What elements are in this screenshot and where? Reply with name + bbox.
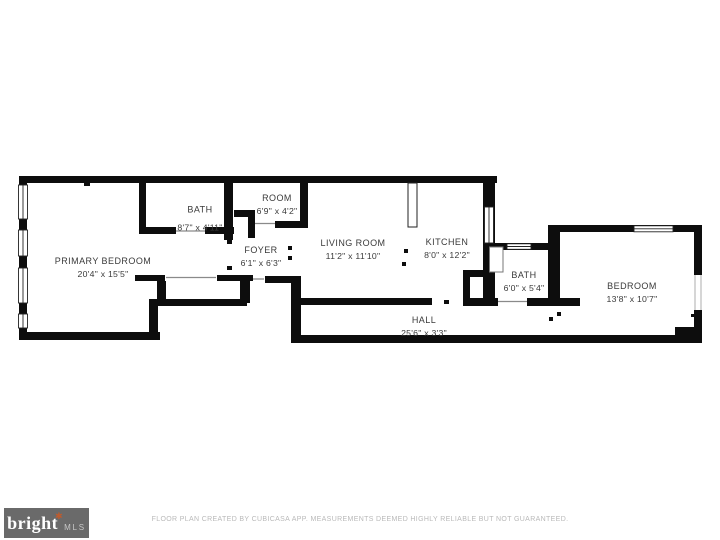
room-label-room: ROOM 6'9" x 4'2" <box>257 193 298 217</box>
room-name: FOYER <box>241 245 282 256</box>
room-dimensions: 6'1" x 6'3" <box>241 258 282 269</box>
logo-suffix-text: MLS <box>64 523 86 532</box>
room-dimensions: 11'2" x 11'10" <box>321 251 386 262</box>
room-dimensions: 8'7" x 4'11" <box>177 223 222 234</box>
room-dimensions: 6'9" x 4'2" <box>257 206 298 217</box>
room-label-hall: HALL 25'6" x 3'3" <box>401 315 447 339</box>
disclaimer-text: FLOOR PLAN CREATED BY CUBICASA APP. MEAS… <box>0 516 720 523</box>
room-label-foyer: FOYER 6'1" x 6'3" <box>241 245 282 269</box>
room-dimensions: 6'0" x 5'4" <box>504 283 545 294</box>
room-dimensions: 20'4" x 15'5" <box>55 269 151 280</box>
bedroom-right-opening <box>694 275 702 310</box>
window-bath <box>507 244 531 250</box>
room-label-living-room: LIVING ROOM 11'2" x 11'10" <box>321 238 386 262</box>
room-label-bedroom: BEDROOM 13'8" x 10'7" <box>607 281 658 305</box>
bright-mls-logo: bright✱MLS <box>4 508 89 538</box>
room-label-kitchen: KITCHEN 8'0" x 12'2" <box>424 237 470 261</box>
floor-plan-page: PRIMARY BEDROOM 20'4" x 15'5" BATH 8'7" … <box>0 0 720 540</box>
room-dimensions: 25'6" x 3'3" <box>401 328 447 339</box>
window-left-2 <box>19 230 28 256</box>
window-kitchen <box>485 207 494 243</box>
room-name: BEDROOM <box>607 281 658 292</box>
room-label-primary-bedroom: PRIMARY BEDROOM 20'4" x 15'5" <box>55 256 151 280</box>
room-dimensions: 13'8" x 10'7" <box>607 294 658 305</box>
room-name: BATH <box>177 205 222 216</box>
room-label-bath-2: BATH 6'0" x 5'4" <box>504 270 545 294</box>
room-name: LIVING ROOM <box>321 238 386 249</box>
window-left-4 <box>19 314 28 328</box>
window-left-1 <box>19 185 28 219</box>
room-name: KITCHEN <box>424 237 470 248</box>
window-left-3 <box>19 268 28 303</box>
room-dimensions: 8'0" x 12'2" <box>424 250 470 261</box>
logo-brand-text: bright <box>7 508 58 538</box>
room-name: HALL <box>401 315 447 326</box>
room-name: PRIMARY BEDROOM <box>55 256 151 267</box>
door-openings <box>166 224 527 302</box>
bath-fixture <box>490 247 504 272</box>
room-label-bath-1: BATH 8'7" x 4'11" <box>177 205 222 234</box>
room-name: ROOM <box>257 193 298 204</box>
room-name: BATH <box>504 270 545 281</box>
kitchen-counter <box>408 183 417 227</box>
window-bedroom <box>634 226 673 232</box>
